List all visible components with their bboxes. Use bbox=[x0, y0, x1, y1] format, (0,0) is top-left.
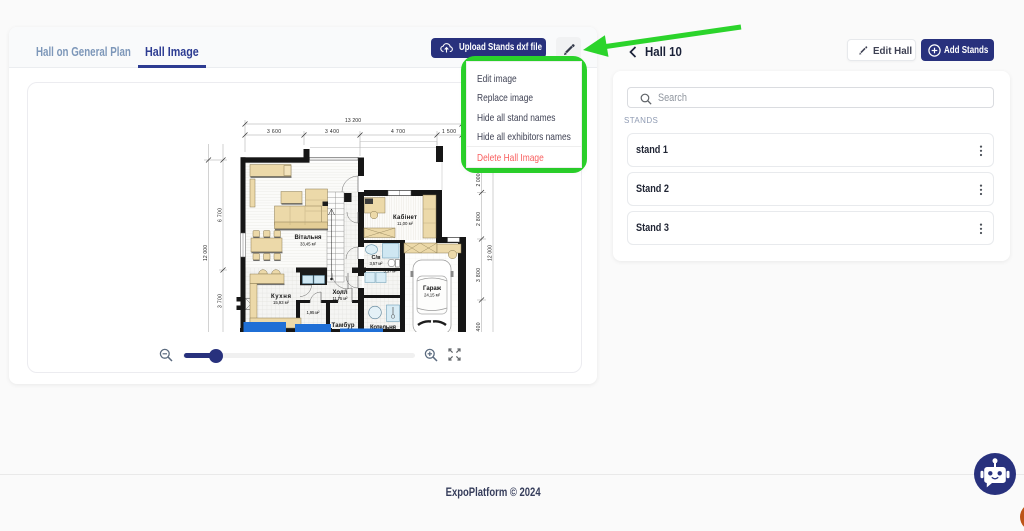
svg-text:Гараж: Гараж bbox=[423, 286, 442, 292]
svg-text:3 400: 3 400 bbox=[325, 129, 339, 135]
svg-text:400: 400 bbox=[476, 322, 482, 331]
svg-text:11,00 м²: 11,00 м² bbox=[397, 221, 414, 226]
svg-text:15,93 м²: 15,93 м² bbox=[273, 300, 290, 305]
svg-text:2 800: 2 800 bbox=[476, 212, 482, 226]
svg-text:1 500: 1 500 bbox=[442, 129, 456, 135]
svg-text:3 800: 3 800 bbox=[476, 268, 482, 282]
svg-text:3 700: 3 700 bbox=[218, 294, 224, 308]
svg-text:6 700: 6 700 bbox=[218, 208, 224, 222]
svg-text:Тамбур: Тамбур bbox=[332, 322, 355, 329]
svg-text:24,15 м²: 24,15 м² bbox=[424, 293, 441, 298]
svg-text:4 700: 4 700 bbox=[391, 129, 405, 135]
svg-text:12 000: 12 000 bbox=[488, 245, 494, 261]
svg-text:3,57 м²: 3,57 м² bbox=[384, 269, 398, 274]
svg-text:2 000: 2 000 bbox=[476, 173, 482, 186]
svg-text:3,57 м²: 3,57 м² bbox=[370, 261, 384, 266]
svg-text:1,95 м²: 1,95 м² bbox=[307, 310, 321, 315]
svg-text:Вітальня: Вітальня bbox=[295, 235, 322, 241]
svg-text:33,45 м²: 33,45 м² bbox=[300, 242, 317, 247]
svg-text:13 200: 13 200 bbox=[345, 118, 361, 124]
svg-text:Кабінет: Кабінет bbox=[393, 214, 417, 221]
svg-text:11,75 м²: 11,75 м² bbox=[333, 296, 349, 301]
svg-text:12 000: 12 000 bbox=[203, 245, 209, 261]
svg-text:3 600: 3 600 bbox=[267, 129, 281, 135]
